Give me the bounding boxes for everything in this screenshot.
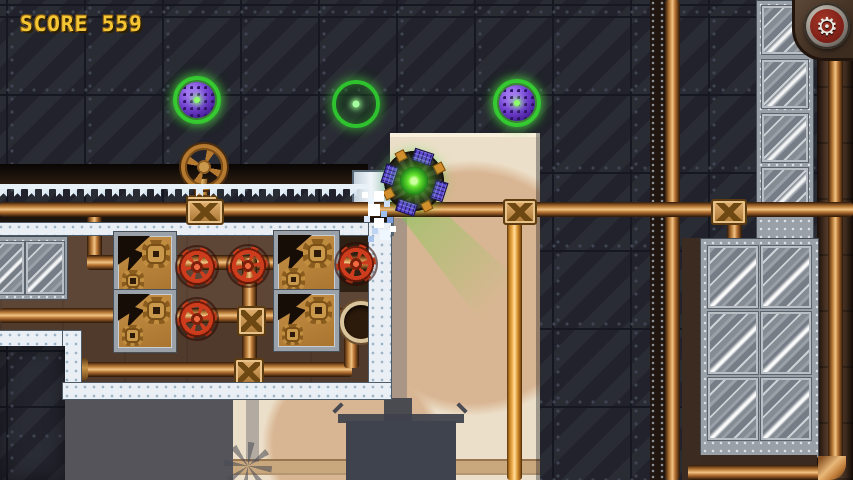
pipe-junction-box xyxy=(237,306,266,336)
steel-plate xyxy=(708,246,758,308)
gear-icon xyxy=(305,297,332,324)
steel-plate xyxy=(762,60,808,108)
red-valve-wheel[interactable] xyxy=(177,247,217,287)
target-ring-1 xyxy=(173,76,221,124)
gear-icon xyxy=(282,324,303,345)
glass-panel-frame xyxy=(0,236,68,300)
gear-icon: ⚙ xyxy=(816,14,838,39)
ice-border-right xyxy=(368,222,392,400)
pit-opening xyxy=(0,346,65,480)
clamp-icon xyxy=(394,149,407,162)
gear-icon xyxy=(122,325,143,346)
floor-right-edge-shadow xyxy=(536,133,540,480)
settings-button[interactable]: ⚙ xyxy=(804,3,850,49)
machine-silhouette-body xyxy=(346,421,456,480)
sparkle-particles xyxy=(362,192,368,198)
riveted-rail xyxy=(650,0,665,480)
gear-icon xyxy=(303,239,332,268)
red-valve-wheel[interactable] xyxy=(336,244,376,284)
orb-core xyxy=(514,100,520,106)
steel-plate xyxy=(761,312,811,374)
target-ring-2 xyxy=(332,80,380,128)
settings-button-face: ⚙ xyxy=(810,9,844,43)
panel-side-brown xyxy=(682,238,700,480)
clamp-icon xyxy=(382,187,395,200)
pipe-gold-vertical xyxy=(507,216,522,480)
red-valve-wheel[interactable] xyxy=(228,246,268,286)
steel-plate xyxy=(708,312,758,374)
score-display: SCORE 559 xyxy=(20,12,143,36)
gear-icon xyxy=(282,268,305,291)
game-screen: SCORE 559 ⚙ xyxy=(0,0,853,480)
red-valve-wheel[interactable] xyxy=(177,299,217,339)
steel-plate xyxy=(761,378,811,440)
clamp-icon xyxy=(420,199,433,212)
pipe-vertical-long xyxy=(665,0,680,480)
pipe-bottom-right xyxy=(688,465,820,480)
score-value: 559 xyxy=(102,12,143,36)
orb-core xyxy=(194,97,200,103)
steel-plate xyxy=(761,246,811,308)
gearbox[interactable] xyxy=(114,232,176,298)
steel-plate xyxy=(708,378,758,440)
steel-plate xyxy=(762,114,808,162)
pipe-junction-box xyxy=(503,199,537,225)
gear-icon xyxy=(122,270,144,292)
pipe-junction-box xyxy=(711,199,747,225)
pipe-vertical-far-right xyxy=(828,40,843,465)
gearbox[interactable] xyxy=(274,290,339,351)
ice-border-bottom xyxy=(62,382,392,400)
armor-panel xyxy=(700,238,819,458)
target-center-dot xyxy=(353,101,360,108)
gear-icon xyxy=(142,240,170,268)
score-label: SCORE xyxy=(20,12,88,36)
floor-top-lip xyxy=(390,133,540,137)
gearbox[interactable] xyxy=(114,290,176,352)
pipe-bottom-run xyxy=(84,362,352,377)
gearbox[interactable] xyxy=(274,231,339,298)
gear-icon xyxy=(143,297,170,324)
spinner-machine[interactable] xyxy=(384,151,444,211)
floor-shadow-area xyxy=(65,398,233,480)
clamp-icon xyxy=(432,161,445,174)
icicles xyxy=(0,184,368,204)
target-ring-3 xyxy=(493,79,541,127)
glass-panel xyxy=(26,242,64,294)
spinner-core-glow xyxy=(400,167,428,195)
glass-panel xyxy=(0,242,24,294)
platform-cast-shadow xyxy=(390,218,407,398)
